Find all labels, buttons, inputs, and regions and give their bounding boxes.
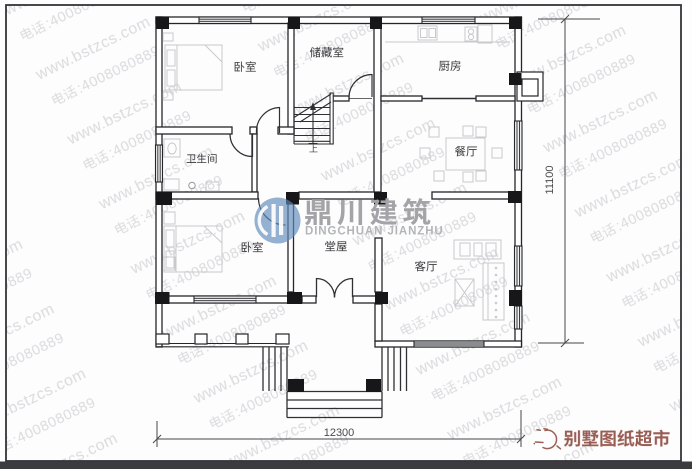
svg-text:DINGCHUAN JIANZHU: DINGCHUAN JIANZHU [305, 226, 444, 238]
svg-text:11100: 11100 [544, 166, 556, 195]
svg-text:12300: 12300 [324, 427, 355, 439]
